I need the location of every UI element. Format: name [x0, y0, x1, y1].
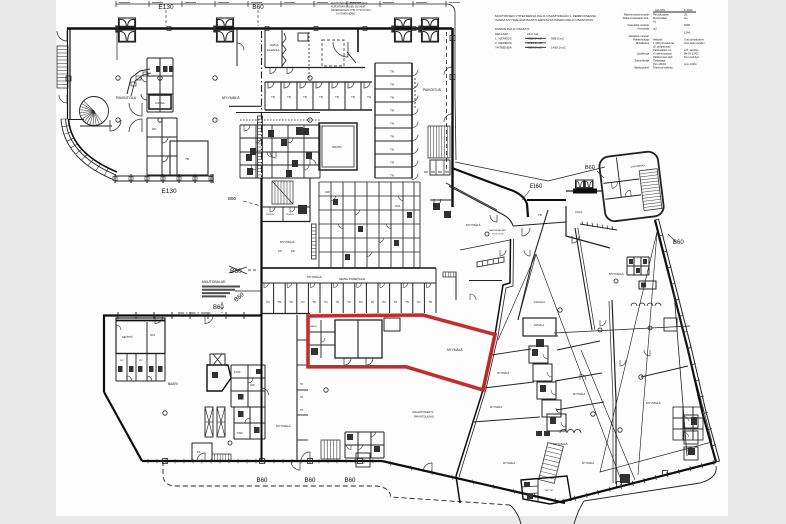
svg-text:KAHVIO: KAHVIO [310, 325, 318, 328]
svg-text:1:100 piirustukset: 1:100 piirustukset [653, 41, 674, 45]
svg-text:AULA: AULA [575, 210, 582, 214]
svg-text:TN: TN [312, 300, 316, 304]
svg-text:TD: TD [300, 409, 303, 412]
svg-text:JA KONEHUONE.: JA KONEHUONE. [336, 13, 356, 16]
svg-text:SOS: SOS [150, 335, 155, 337]
svg-text:ALT/4TH: ALT/4TH [655, 8, 665, 12]
svg-text:TN: TN [347, 300, 351, 304]
svg-text:KAHVILA: KAHVILA [267, 48, 280, 52]
svg-text:B60: B60 [252, 4, 264, 11]
svg-text:Muutosalue: Muutosalue [653, 16, 667, 20]
svg-text:TN: TN [382, 300, 386, 304]
svg-text:TN: TN [405, 300, 409, 304]
svg-text:Valokopiointi: Valokopiointi [634, 66, 649, 70]
svg-text:Rakennuskaavamerk.: Rakennuskaavamerk. [623, 16, 649, 20]
svg-text:SOS: SOS [395, 205, 400, 208]
svg-text:TN: TN [335, 95, 339, 99]
svg-text:TN: TN [278, 300, 282, 304]
svg-text:1. KERROS: 1. KERROS [495, 37, 512, 41]
svg-text:MYYMÄLÄ: MYYMÄLÄ [222, 96, 240, 100]
svg-text:TN: TN [367, 95, 371, 99]
svg-text:Helsinki: Helsinki [653, 38, 663, 42]
svg-text:B60: B60 [256, 477, 268, 484]
svg-text:TN: TN [336, 300, 340, 304]
svg-text:MYYMÄLÄ: MYYMÄLÄ [646, 401, 661, 405]
svg-text:MYYMÄLÄ: MYYMÄLÄ [307, 275, 322, 279]
svg-text:BAARI: BAARI [168, 382, 178, 386]
svg-text:LK pohjakuvat: LK pohjakuvat [653, 45, 670, 49]
svg-text:Bit-01 12/03: Bit-01 12/03 [684, 52, 699, 56]
svg-text:Pvm selvitys: Pvm selvitys [684, 55, 700, 59]
svg-text:TN: TN [289, 300, 293, 304]
svg-text:TN: TN [390, 174, 394, 178]
svg-text:KASSA: KASSA [155, 101, 164, 105]
svg-text:MYYMÄLÄ: MYYMÄLÄ [582, 462, 595, 465]
svg-text:E130: E130 [161, 188, 177, 195]
svg-text:KEITTIÖ: KEITTIÖ [122, 335, 132, 339]
svg-text:Tarkastaja: Tarkastaja [653, 59, 666, 63]
svg-text:MUUTOSALUE: MUUTOSALUE [202, 280, 226, 284]
svg-text:EI60: EI60 [530, 184, 543, 190]
svg-text:B60: B60 [228, 196, 237, 201]
svg-text:KYLM: KYLM [234, 372, 240, 374]
svg-text:TN: TN [390, 83, 394, 87]
svg-text:B60: B60 [344, 477, 356, 484]
svg-text:TN: TN [390, 122, 394, 126]
svg-text:Uusi piirustukset: Uusi piirustukset [684, 38, 704, 42]
svg-text:1344: 1344 [684, 31, 690, 35]
svg-text:TN: TN [417, 300, 421, 304]
svg-text:B60: B60 [585, 165, 595, 171]
svg-text:KK: KK [291, 249, 295, 253]
svg-text:MYYMÄLÄ: MYYMÄLÄ [280, 240, 295, 244]
svg-text:TN: TN [303, 95, 307, 99]
svg-text:TN: TN [390, 109, 394, 113]
svg-text:TR: TR [538, 213, 542, 217]
svg-text:RAVINTOLA: RAVINTOLA [116, 96, 137, 100]
svg-text:VANHA MYYMÄLÄN/OSASTO ERISTÄVÄ: VANHA MYYMÄLÄN/OSASTO ERISTÄVÄ PANKIN PA… [495, 18, 594, 22]
svg-text:Lisätietoja: Lisätietoja [637, 52, 650, 56]
svg-text:TN: TN [390, 135, 394, 139]
svg-text:2. KERROS: 2. KERROS [495, 41, 512, 45]
svg-text:TN: TN [370, 300, 374, 304]
svg-text:KEITTIÖ: KEITTIÖ [545, 489, 554, 492]
svg-text:TK: TK [360, 230, 363, 233]
svg-text:VAR: VAR [250, 384, 255, 387]
svg-text:LH: LH [684, 16, 687, 20]
svg-text:TD: TD [300, 383, 303, 386]
svg-text:MYYMÄLÄ: MYYMÄLÄ [490, 406, 503, 409]
svg-text:2000: 2000 [684, 23, 690, 27]
svg-text:erill. selvitys: erill. selvitys [684, 48, 699, 52]
svg-text:PUKUH: PUKUH [266, 214, 274, 216]
svg-text:MYYMÄLÄ: MYYMÄLÄ [609, 272, 624, 276]
svg-text:1420.0 m2: 1420.0 m2 [551, 46, 566, 50]
svg-text:MYYMÄLÄ: MYYMÄLÄ [466, 223, 481, 227]
svg-text:Osa-alue korjattu: Osa-alue korjattu [684, 41, 705, 45]
svg-text:PUKUH: PUKUH [286, 214, 294, 216]
svg-text:KELLARI: KELLARI [495, 32, 508, 36]
svg-text:Kaavatilat varasto: Kaavatilat varasto [628, 23, 650, 27]
svg-text:TN: TN [390, 148, 394, 152]
svg-text:MYYMÄLÄ: MYYMÄLÄ [497, 372, 510, 375]
svg-text:Kerrosala: Kerrosala [637, 27, 649, 31]
svg-text:SEINÄ PURETAAN: SEINÄ PURETAAN [339, 277, 365, 281]
svg-text:WC: WC [152, 127, 156, 131]
svg-text:Rakennustoimenpide: Rakennustoimenpide [624, 13, 650, 17]
svg-text:21.0 m2: 21.0 m2 [527, 32, 538, 36]
svg-text:25: 25 [684, 13, 687, 17]
svg-text:MYYMÄLÄ: MYYMÄLÄ [276, 424, 291, 428]
svg-text:Peruskorjaus: Peruskorjaus [653, 13, 669, 17]
svg-text:KK: KK [278, 249, 282, 253]
svg-text:LINJASTO/KESTI/: LINJASTO/KESTI/ [412, 410, 434, 414]
svg-text:pvm 10/04: pvm 10/04 [684, 62, 697, 66]
svg-text:PANKIN PALO-OSASTO:: PANKIN PALO-OSASTO: [495, 27, 530, 31]
svg-text:E130: E130 [158, 4, 174, 11]
svg-text:KAHVILA: KAHVILA [534, 300, 545, 304]
svg-text:MYYMÄLÄ: MYYMÄLÄ [447, 348, 463, 352]
svg-text:m2: m2 [653, 27, 657, 31]
svg-text:TN: TN [394, 300, 398, 304]
svg-text:TISKI: TISKI [237, 433, 243, 435]
svg-text:Paloluokitus os.: Paloluokitus os. [653, 48, 672, 52]
svg-text:TN: TN [266, 300, 270, 304]
svg-text:Pvm 06/01: Pvm 06/01 [653, 62, 666, 66]
svg-text:MYYMÄLÄ: MYYMÄLÄ [553, 442, 568, 446]
svg-text:VAR: VAR [325, 191, 330, 194]
svg-text:KAHVILA: KAHVILA [534, 324, 545, 327]
svg-text:Rakennuttaja: Rakennuttaja [633, 38, 649, 42]
svg-text:TK: TK [197, 450, 201, 454]
svg-text:KATIA: KATIA [270, 43, 278, 47]
svg-text:YHTEENSÄ: YHTEENSÄ [495, 46, 513, 50]
svg-text:TN: TN [390, 96, 394, 100]
svg-text:LASTENVAUNUT: LASTENVAUNUT [489, 229, 507, 232]
svg-text:TN: TN [390, 161, 394, 165]
svg-text:TN: TN [359, 300, 363, 304]
svg-text:AL: AL [653, 20, 657, 24]
svg-text:K-2000: K-2000 [684, 8, 693, 12]
svg-text:TUOLIT OS.: TUOLIT OS. [492, 234, 505, 236]
svg-text:Tilavuus laskettu: Tilavuus laskettu [653, 66, 673, 70]
svg-text:MYYMÄLÄ: MYYMÄLÄ [503, 462, 516, 465]
svg-text:B60: B60 [304, 477, 316, 484]
svg-text:TN: TN [324, 300, 328, 304]
svg-text:MAITO: MAITO [332, 145, 342, 149]
svg-text:MYYMÄLÄ: MYYMÄLÄ [573, 393, 586, 396]
svg-text:Mittakaava: Mittakaava [636, 41, 650, 45]
svg-text:959.5 m2: 959.5 m2 [551, 37, 564, 41]
svg-text:TN: TN [301, 300, 305, 304]
svg-text:RAVINTOLASALI: RAVINTOLASALI [414, 415, 434, 419]
svg-text:B60: B60 [213, 305, 224, 311]
svg-text:Suunnittelija: Suunnittelija [634, 59, 649, 63]
svg-text:TR: TR [185, 157, 189, 161]
svg-text:Palokunnan tark.: Palokunnan tark. [653, 55, 673, 59]
svg-text:TN: TN [390, 70, 394, 74]
svg-text:Vastaava mestari: Vastaava mestari [628, 34, 649, 38]
svg-text:TN: TN [271, 95, 275, 99]
svg-text:PAIKOITUS: PAIKOITUS [423, 88, 442, 92]
svg-text:WC: WC [139, 360, 143, 362]
svg-text:TN: TN [351, 95, 355, 99]
svg-text:TN: TN [287, 95, 291, 99]
svg-text:TN: TN [319, 95, 323, 99]
svg-text:TN: TN [428, 300, 432, 304]
svg-text:TD: TD [300, 396, 303, 399]
svg-text:WC: WC [120, 360, 124, 362]
svg-text:K rakennusosat: K rakennusosat [653, 52, 672, 56]
